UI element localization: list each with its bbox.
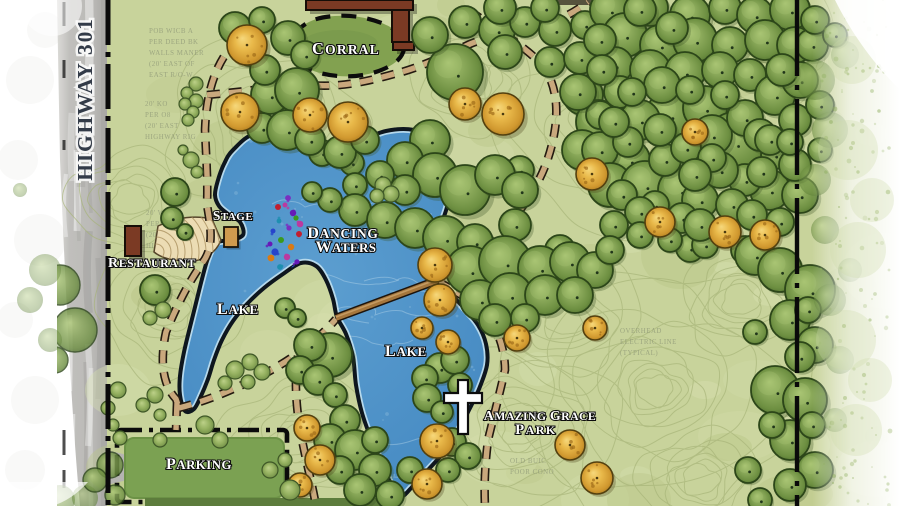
svg-text:PER DEED BK: PER DEED BK [149, 39, 199, 46]
svg-text:WATERS: WATERS [316, 239, 377, 256]
svg-text:RESTAURANT: RESTAURANT [108, 256, 196, 271]
svg-text:(20' EAST OF: (20' EAST OF [149, 61, 195, 68]
svg-text:LAKE: LAKE [217, 301, 259, 318]
svg-text:PARK: PARK [515, 422, 557, 438]
svg-text:POOR CONO: POOR CONO [510, 469, 554, 476]
svg-text:LAKE: LAKE [385, 343, 427, 360]
svg-text:CORRAL: CORRAL [312, 39, 380, 58]
svg-text:EAST R/O-W: EAST R/O-W [149, 72, 193, 79]
svg-text:POB WICB A: POB WICB A [149, 28, 193, 35]
svg-text:STAGE: STAGE [213, 208, 253, 223]
svg-text:ELECTRIC LINE: ELECTRIC LINE [620, 339, 677, 346]
svg-text:OLD BUIC: OLD BUIC [510, 458, 546, 465]
svg-text:WALLS MANER: WALLS MANER [149, 50, 204, 57]
svg-text:20' KO: 20' KO [145, 101, 168, 108]
svg-text:HIGHWAY 301: HIGHWAY 301 [73, 17, 97, 180]
svg-text:PARKING: PARKING [166, 456, 232, 473]
svg-text:PER O8: PER O8 [145, 112, 171, 119]
svg-text:AMAZING GRACE: AMAZING GRACE [484, 409, 596, 424]
svg-text:HIGHWAY RIG: HIGHWAY RIG [145, 134, 196, 141]
svg-text:(20' EAST: (20' EAST [145, 123, 179, 130]
svg-text:OVERHEAD: OVERHEAD [620, 328, 662, 335]
svg-text:(TYPICAL): (TYPICAL) [620, 350, 658, 357]
